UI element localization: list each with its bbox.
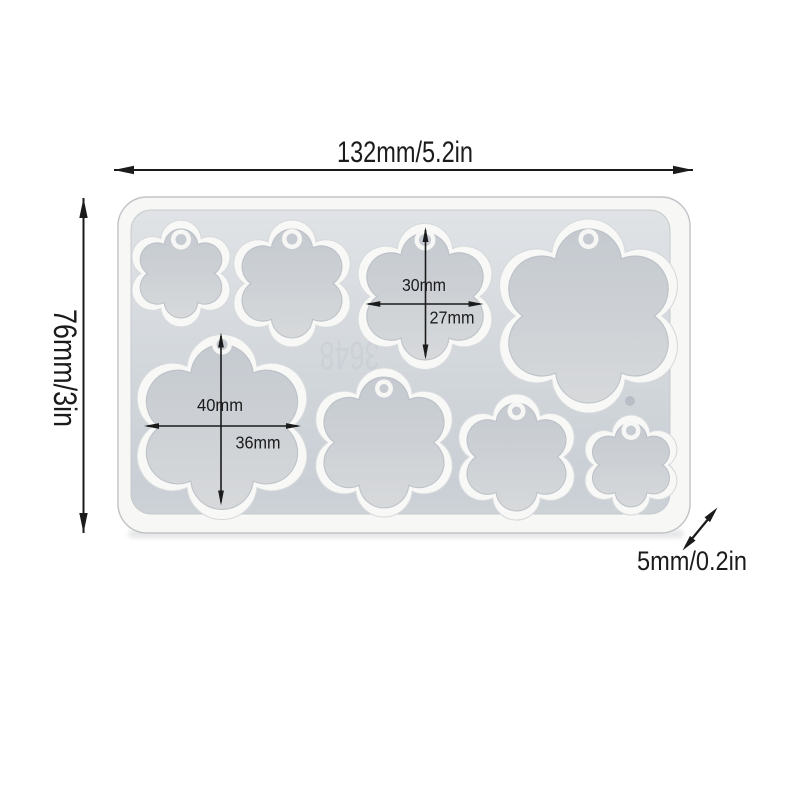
svg-text:30mm: 30mm <box>402 275 446 295</box>
svg-text:36mm: 36mm <box>236 433 281 453</box>
svg-text:76mm/3in: 76mm/3in <box>47 309 83 427</box>
svg-text:132mm/5.2in: 132mm/5.2in <box>337 136 473 169</box>
svg-text:27mm: 27mm <box>430 308 475 328</box>
svg-text:40mm: 40mm <box>197 395 243 415</box>
svg-text:5mm/0.2in: 5mm/0.2in <box>637 546 747 576</box>
